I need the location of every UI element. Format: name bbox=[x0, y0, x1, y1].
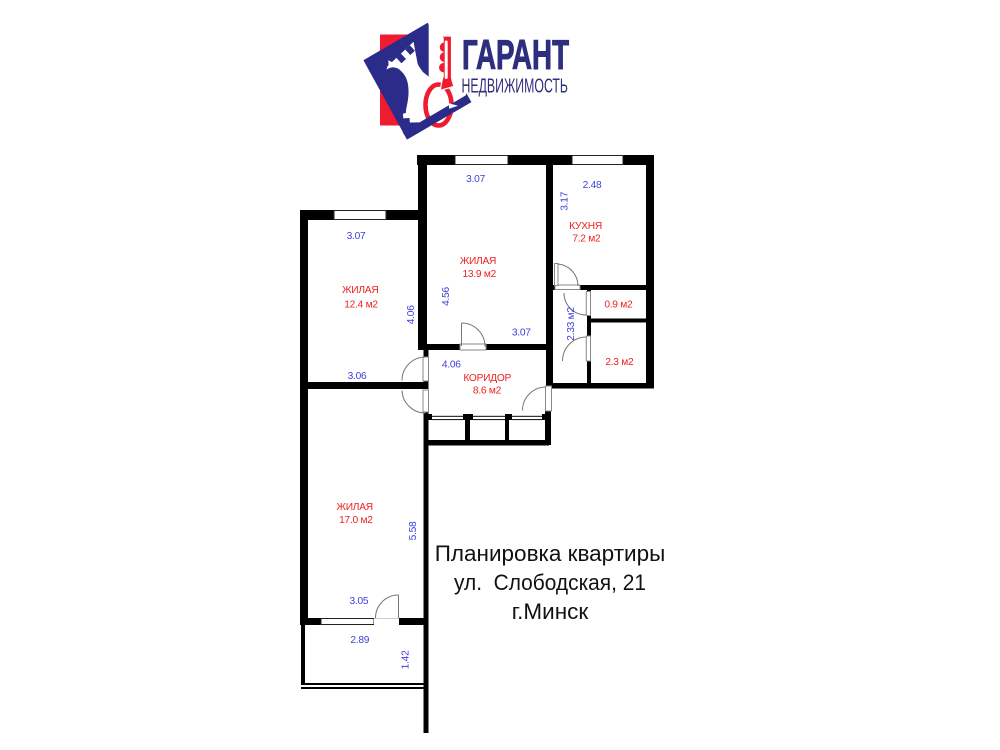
svg-text:2.48: 2.48 bbox=[583, 180, 602, 191]
svg-text:ул. Слободская, 21: ул. Слободская, 21 bbox=[454, 570, 646, 595]
svg-text:ЖИЛАЯ: ЖИЛАЯ bbox=[460, 256, 496, 267]
svg-text:2.3 м2: 2.3 м2 bbox=[605, 357, 634, 368]
svg-text:НЕДВИЖИМОСТЬ: НЕДВИЖИМОСТЬ bbox=[462, 75, 569, 98]
svg-text:Планировка квартиры: Планировка квартиры bbox=[435, 541, 666, 566]
svg-text:5.58: 5.58 bbox=[408, 521, 419, 540]
svg-text:ЖИЛАЯ: ЖИЛАЯ bbox=[337, 502, 373, 513]
svg-text:0.9 м2: 0.9 м2 bbox=[604, 300, 633, 311]
svg-text:ГАРАНТ: ГАРАНТ bbox=[462, 31, 569, 78]
svg-text:3.06: 3.06 bbox=[348, 371, 367, 382]
svg-text:3.07: 3.07 bbox=[466, 174, 485, 185]
svg-text:7.2 м2: 7.2 м2 bbox=[572, 233, 601, 244]
svg-text:3.07: 3.07 bbox=[347, 231, 366, 242]
svg-text:1.42: 1.42 bbox=[401, 650, 412, 669]
svg-text:13.9 м2: 13.9 м2 bbox=[463, 269, 497, 280]
svg-text:8.6 м2: 8.6 м2 bbox=[473, 386, 502, 397]
svg-text:3.17: 3.17 bbox=[559, 191, 570, 210]
svg-text:2.89: 2.89 bbox=[350, 635, 369, 646]
svg-text:2.33 м2: 2.33 м2 bbox=[566, 307, 577, 341]
svg-text:4.56: 4.56 bbox=[441, 287, 452, 306]
svg-text:г.Минск: г.Минск bbox=[512, 599, 589, 624]
svg-text:КОРИДОР: КОРИДОР bbox=[463, 373, 511, 384]
svg-text:КУХНЯ: КУХНЯ bbox=[569, 221, 602, 232]
svg-text:3.07: 3.07 bbox=[512, 328, 531, 339]
svg-text:ЖИЛАЯ: ЖИЛАЯ bbox=[342, 285, 378, 296]
svg-text:17.0 м2: 17.0 м2 bbox=[339, 515, 373, 526]
svg-text:4.06: 4.06 bbox=[406, 305, 417, 324]
svg-text:3.05: 3.05 bbox=[349, 596, 368, 607]
svg-text:4.06: 4.06 bbox=[442, 360, 461, 371]
svg-text:12.4 м2: 12.4 м2 bbox=[344, 300, 378, 311]
